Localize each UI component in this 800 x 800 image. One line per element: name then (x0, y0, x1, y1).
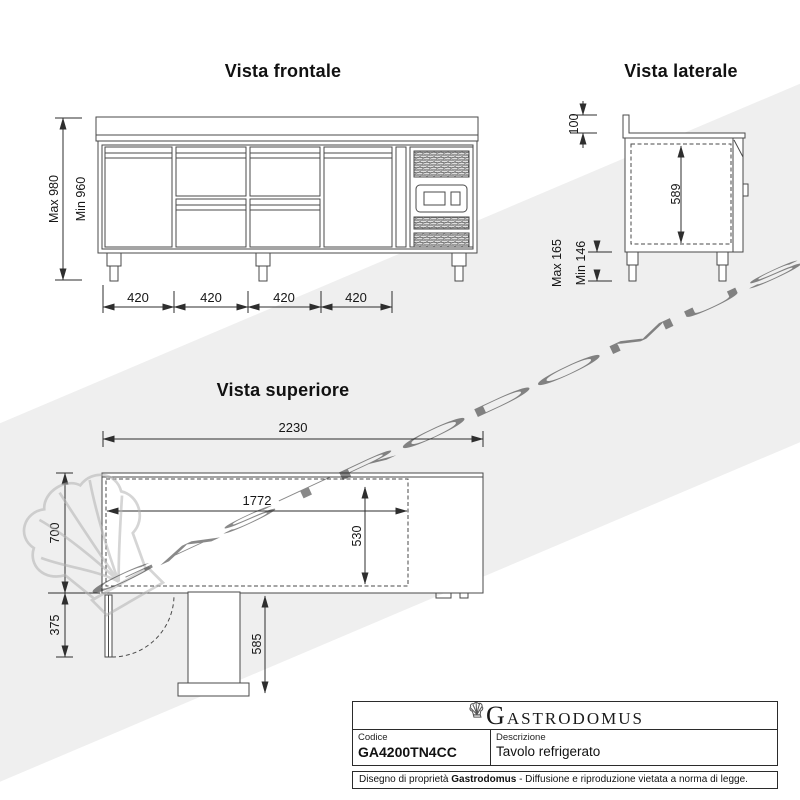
chef-hat-logo-icon (469, 702, 485, 719)
front-view-title: Vista frontale (183, 61, 383, 82)
vent-grille-mid (414, 217, 469, 229)
front-worktop-lip (96, 135, 478, 141)
dim-front-width-3: 420 (273, 290, 295, 305)
dim-top-total-width: 2230 (279, 420, 308, 435)
top-view-title: Vista superiore (183, 380, 383, 401)
notice-suffix: - Diffusione e riproduzione vietata a no… (516, 774, 748, 785)
description-label: Descrizione (496, 732, 777, 743)
dim-side-interior-height: 589 (669, 184, 683, 205)
brand-logo-text: GASTRODOMUS (486, 704, 644, 731)
vent-grille-top (414, 151, 469, 177)
description-value: Tavolo refrigerato (496, 744, 777, 759)
side-body (625, 138, 743, 252)
title-block-logo-row: GASTRODOMUS (353, 702, 777, 730)
technical-drawing: Max 980 Min 960 420 420 420 420 100 589 … (0, 0, 800, 800)
top-hinge-2 (460, 593, 468, 598)
dim-top-drawer-open: 585 (250, 634, 264, 655)
title-block: GASTRODOMUS Codice GA4200TN4CC Descrizio… (352, 701, 778, 766)
dim-side-backsplash: 100 (567, 114, 581, 135)
dim-side-leg-min: Min 146 (574, 241, 588, 286)
dim-top-door-open: 375 (48, 615, 62, 636)
code-value: GA4200TN4CC (358, 744, 490, 760)
dim-side-leg-max: Max 165 (550, 239, 564, 287)
dim-front-width-4: 420 (345, 290, 367, 305)
copyright-notice: Disegno di proprietà Gastrodomus - Diffu… (352, 771, 778, 789)
front-worktop (96, 117, 478, 135)
dim-front-min-height: Min 960 (74, 177, 88, 222)
dim-front-width-2: 420 (200, 290, 222, 305)
notice-brand: Gastrodomus (451, 774, 516, 785)
description-cell: Descrizione Tavolo refrigerato (491, 730, 777, 766)
vent-grille-bottom (414, 233, 469, 247)
drawing-sheet: Max 980 Min 960 420 420 420 420 100 589 … (0, 0, 800, 800)
dim-front-width-1: 420 (127, 290, 149, 305)
dim-front-max-height: Max 980 (47, 175, 61, 223)
top-open-drawer (178, 592, 249, 696)
code-cell: Codice GA4200TN4CC (353, 730, 491, 766)
dim-top-interior-depth: 530 (350, 526, 364, 547)
notice-prefix: Disegno di proprietà (359, 774, 451, 785)
code-label: Codice (358, 732, 490, 743)
side-handle (743, 184, 748, 196)
side-view-title: Vista laterale (581, 61, 781, 82)
